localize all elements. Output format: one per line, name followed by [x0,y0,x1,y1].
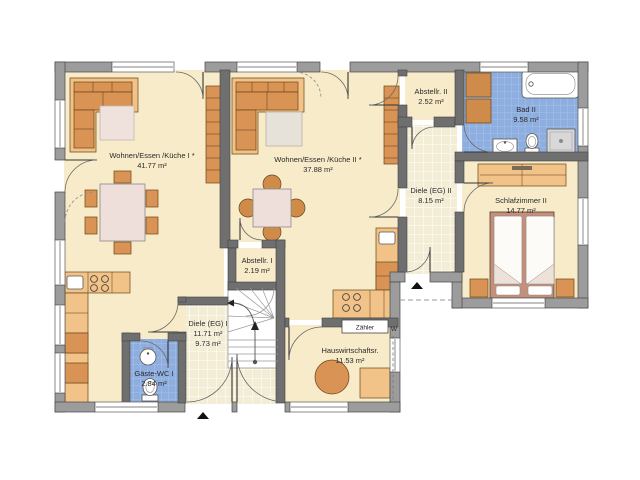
room-label-storage2-name: Abstellr. II [415,87,448,96]
rug-2 [266,112,302,146]
floor-plan-drawing: Wohnen/Essen /Küche I * 41.77 m² Wohnen/… [0,0,640,480]
shower [547,129,575,153]
window [578,108,588,146]
window [290,402,348,412]
window [112,62,174,72]
room-label-storage2-area: 2.52 m² [418,97,444,106]
room-label-living1-area: 41.77 m² [137,161,167,170]
meter-label: Zähler [356,325,375,332]
window [95,402,158,412]
dining-table-1 [100,184,145,241]
room-label-living2-name: Wohnen/Essen /Küche II * [274,155,361,164]
room-label-bath2-name: Bad II [516,105,536,114]
nightstand-left [470,279,488,297]
room-label-bedroom2-name: Schlafzimmer II [495,196,547,205]
cabinet-1 [206,86,221,183]
room-label-hall2-area: 8.15 m² [418,196,444,205]
room-label-hall2-name: Diele (EG) II [410,186,451,195]
room-label-bedroom2-area: 14.77 m² [506,206,536,215]
entrance-marker-2 [411,282,423,289]
floor-plan-page: Wohnen/Essen /Küche I * 41.77 m² Wohnen/… [0,0,640,480]
window [492,298,545,308]
window [55,353,65,393]
bathtub [522,70,579,98]
window [578,198,588,245]
double-bed [490,212,554,298]
utility-round-table [315,360,349,394]
room-label-living1-name: Wohnen/Essen /Küche I * [109,151,194,160]
room-label-guest-wc-name: Gäste-WC I [134,369,173,378]
dining-table-2 [253,189,291,227]
room-hall1-floor-lower [228,366,278,404]
window [55,100,65,148]
room-label-living2-area: 37.88 m² [303,165,333,174]
room-label-storage1-area: 2.19 m² [244,266,270,275]
room-label-hall1-area2: 9.73 m² [195,339,221,348]
room-label-utility-name: Hauswirtschaftsr. [321,346,378,355]
utility-cabinet [360,368,390,398]
window [55,305,65,345]
room-label-hall1-area: 11.71 m² [193,329,223,338]
wall-mark-label: W [391,326,398,333]
room-label-utility-area: 11.53 m² [335,356,365,365]
room-label-guest-wc-area: 2.84 m² [141,379,167,388]
window [55,240,65,285]
room-label-bath2-area: 9.58 m² [513,115,539,124]
room-label-storage1-name: Abstellr. I [242,256,273,265]
window [237,62,297,72]
nightstand-right [556,279,574,297]
room-label-hall1-name: Diele (EG) I [188,319,227,328]
window [480,62,528,72]
room-storage1-floor [236,248,276,282]
window [390,338,400,372]
entrance-marker-1 [197,412,209,419]
rug-1 [100,106,134,140]
bath-toilet [525,134,539,155]
